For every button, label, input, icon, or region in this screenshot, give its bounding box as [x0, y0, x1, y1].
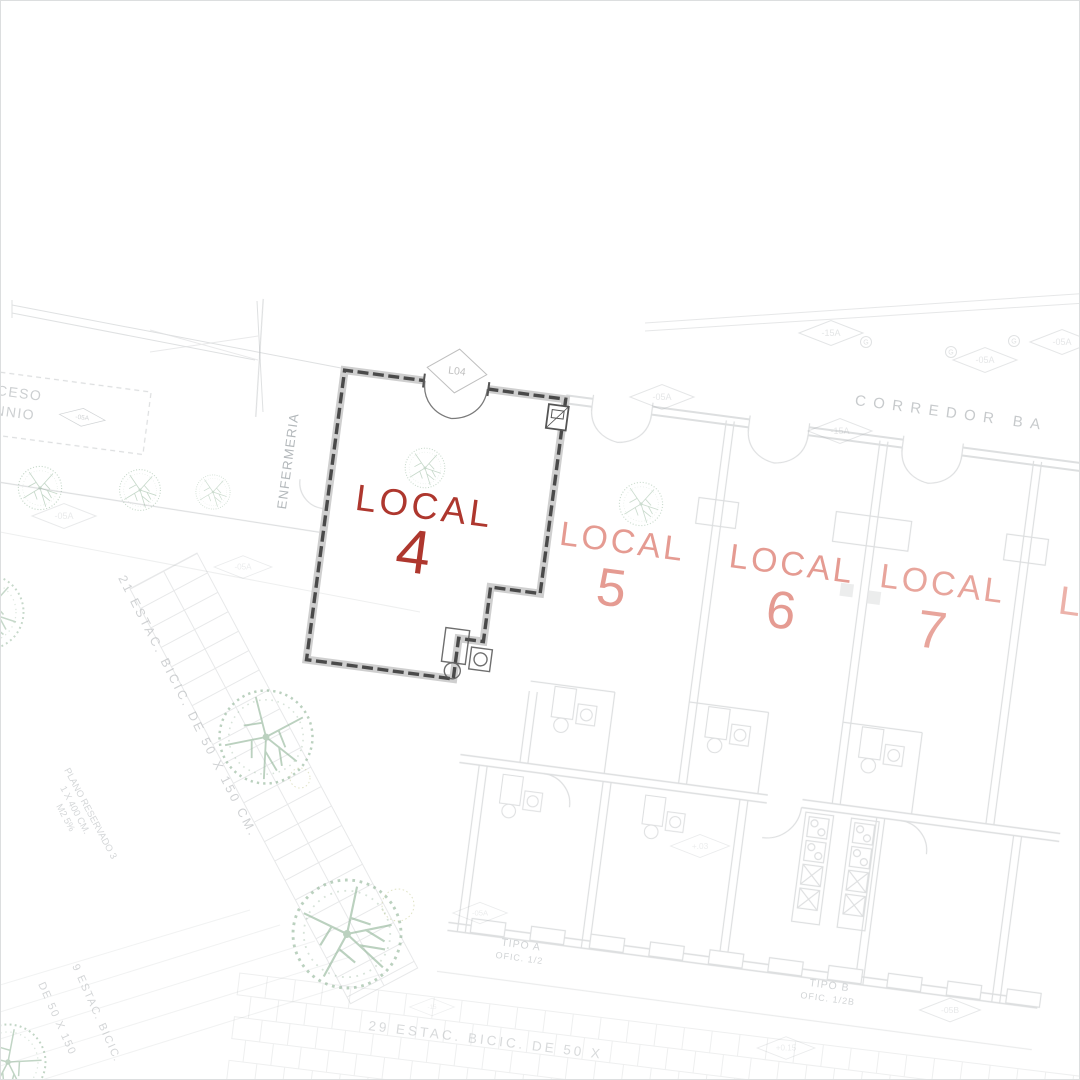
shrub-icon — [382, 889, 414, 921]
level-tag: -15A — [799, 321, 863, 346]
tree-icon — [0, 575, 24, 650]
level-tag-text: -05A — [234, 563, 252, 572]
level-tag: -05A — [1030, 330, 1080, 355]
tree-icon — [196, 475, 230, 509]
local4-wall — [307, 370, 566, 689]
level-tag-text: +.03 — [692, 842, 709, 851]
enfermeria-label: ENFERMERIA — [274, 412, 302, 510]
bath-fixture-icon — [703, 707, 753, 757]
access-label-line2: NNIO — [0, 402, 36, 423]
local5-number: 5 — [593, 557, 630, 619]
level-tag: -05A — [58, 405, 106, 429]
wing-walls — [12, 300, 341, 412]
gas-tag-text: G — [863, 340, 868, 347]
bike-bottom-text: 29 ESTAC. BICIC. DE 50 X — [368, 1018, 604, 1062]
level-tag: -05A — [32, 504, 96, 529]
corridor-edge-lines — [645, 288, 1080, 331]
tree-icon — [405, 448, 445, 488]
local4-number: 4 — [392, 516, 435, 589]
level-tag: -05A — [630, 385, 694, 410]
local4-door-swing — [421, 381, 488, 423]
bike-corner-label-2: DE 50 X 150 — [35, 980, 78, 1057]
level-tag: -05A — [953, 348, 1017, 373]
local7-number: 7 — [913, 599, 950, 661]
enfermeria-text: ENFERMERIA — [274, 412, 302, 510]
level-tag-text: +0.15 — [776, 1044, 797, 1053]
walk-edge-line — [0, 532, 420, 612]
level-tag: -05B — [920, 998, 981, 1022]
bath-fixture-icon — [498, 774, 545, 822]
level-tag-text: -05A — [652, 392, 671, 402]
level-tag: +.03 — [671, 835, 730, 858]
level-tag-text: -05A — [975, 355, 994, 365]
level-tag-text: -15 — [427, 1004, 437, 1011]
gas-tag-text: G — [948, 350, 953, 357]
level-tag-text: -05B — [941, 1005, 959, 1015]
local6-number: 6 — [763, 579, 800, 641]
level-tag-text: -05A — [1052, 337, 1071, 347]
gas-tag-text: G — [1011, 339, 1016, 346]
floor-plan-canvas: 21 ESTAC. BICIC. DE 50 X 150 CM. 29 ESTA… — [0, 0, 1080, 1080]
tree-icon — [619, 482, 662, 525]
electrical-panel-icon — [546, 404, 569, 430]
gas-tag: G — [861, 337, 872, 348]
access-label-line1: CESO — [0, 382, 43, 404]
gas-tag: G — [946, 347, 957, 358]
level-tag-text: -05A — [54, 511, 73, 521]
gas-tag: G — [1009, 336, 1020, 347]
level-tag-local4: L04 — [425, 346, 490, 397]
bath-fixture-icon — [857, 727, 907, 777]
level-tag-text: -15A — [830, 426, 849, 436]
bath-fixture-icon — [549, 686, 599, 736]
local8-label-fragment: L — [1056, 579, 1080, 626]
reserved-note: PLANO RESERVADO 3 1 X 400 CM. M2 5% — [40, 766, 119, 872]
level-tag-text: L04 — [448, 364, 467, 378]
floor-plan-viewport: 21 ESTAC. BICIC. DE 50 X 150 CM. 29 ESTA… — [0, 0, 1080, 1080]
tree-icon — [273, 860, 421, 1008]
local4-wall-underlay — [307, 370, 566, 689]
bike-corner-text-2: DE 50 X 150 — [35, 980, 78, 1057]
shrub-icon — [290, 768, 310, 788]
level-tags-layer: L04 -05A -05A -05A -15A -15A -05A -05A +… — [32, 321, 1080, 1060]
level-tag-text: -15A — [821, 328, 840, 338]
bath-fixture-icon — [640, 795, 687, 843]
level-tag-text: -05A — [472, 909, 489, 918]
bike-bottom-label: 29 ESTAC. BICIC. DE 50 X — [368, 1018, 604, 1062]
corridor-label: CORREDOR BA — [854, 392, 1049, 434]
level-tag-text: -05A — [75, 414, 90, 423]
